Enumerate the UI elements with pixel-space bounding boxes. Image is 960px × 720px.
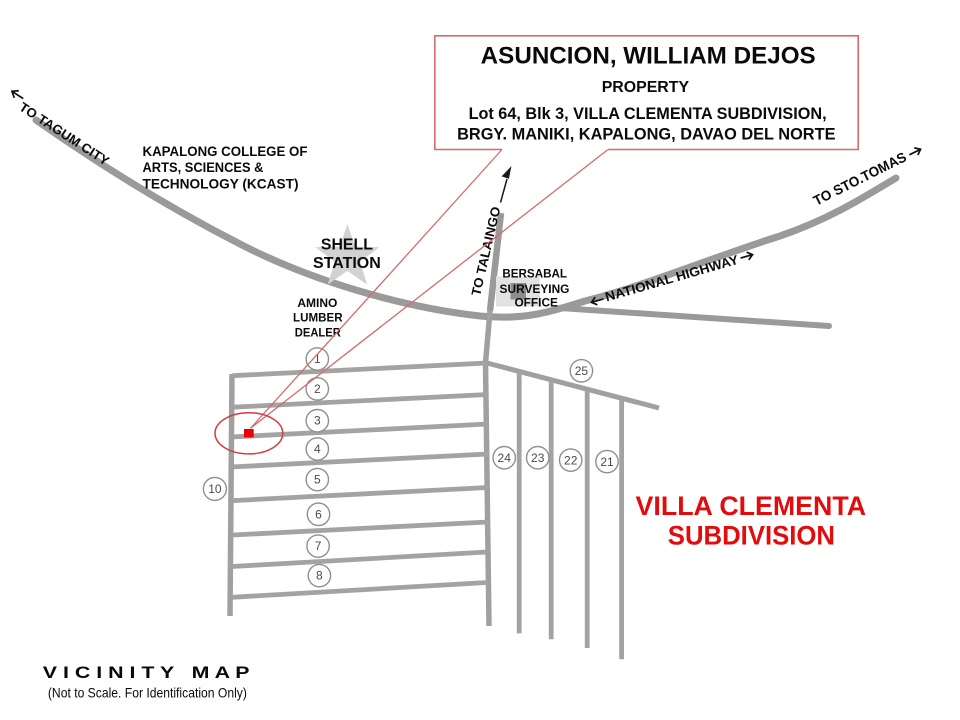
svg-text:22: 22 — [564, 453, 578, 467]
svg-text:ASUNCION, WILLIAM DEJOS: ASUNCION, WILLIAM DEJOS — [481, 43, 816, 70]
svg-text:2: 2 — [314, 382, 321, 396]
svg-text:25: 25 — [575, 364, 589, 378]
svg-text:OFFICE: OFFICE — [514, 296, 558, 310]
svg-text:STATION: STATION — [313, 255, 381, 272]
svg-text:8: 8 — [316, 569, 323, 583]
svg-text:SUBDIVISION: SUBDIVISION — [668, 521, 835, 551]
svg-text:KAPALONG COLLEGE OF: KAPALONG COLLEGE OF — [143, 144, 308, 159]
svg-text:(Not to Scale. For Identificat: (Not to Scale. For Identification Only) — [48, 685, 247, 701]
svg-text:DEALER: DEALER — [295, 325, 341, 339]
svg-text:SHELL: SHELL — [321, 237, 373, 254]
svg-text:10: 10 — [208, 482, 222, 496]
svg-text:24: 24 — [498, 451, 512, 465]
svg-text:6: 6 — [315, 507, 322, 521]
svg-text:TECHNOLOGY (KCAST): TECHNOLOGY (KCAST) — [143, 176, 299, 191]
svg-text:SURVEYING: SURVEYING — [500, 282, 570, 296]
svg-text:LUMBER: LUMBER — [293, 311, 343, 325]
svg-text:23: 23 — [531, 451, 545, 465]
svg-text:4: 4 — [314, 442, 321, 456]
svg-text:ARTS, SCIENCES &: ARTS, SCIENCES & — [143, 160, 264, 175]
svg-text:BERSABAL: BERSABAL — [502, 266, 567, 280]
svg-text:AMINO: AMINO — [297, 296, 337, 310]
svg-text:21: 21 — [600, 455, 614, 469]
svg-text:Lot 64, Blk 3, VILLA CLEMENTA: Lot 64, Blk 3, VILLA CLEMENTA SUBDIVISIO… — [469, 105, 827, 123]
svg-text:3: 3 — [314, 414, 321, 428]
svg-text:BRGY. MANIKI, KAPALONG, DAVAO: BRGY. MANIKI, KAPALONG, DAVAO DEL NORTE — [457, 126, 835, 144]
svg-text:7: 7 — [315, 539, 322, 553]
svg-text:5: 5 — [314, 473, 321, 487]
svg-text:V I C I N I T Y M A P: V I C I N I T Y M A P — [43, 663, 250, 682]
svg-text:PROPERTY: PROPERTY — [602, 79, 690, 96]
svg-text:VILLA CLEMENTA: VILLA CLEMENTA — [636, 491, 867, 521]
